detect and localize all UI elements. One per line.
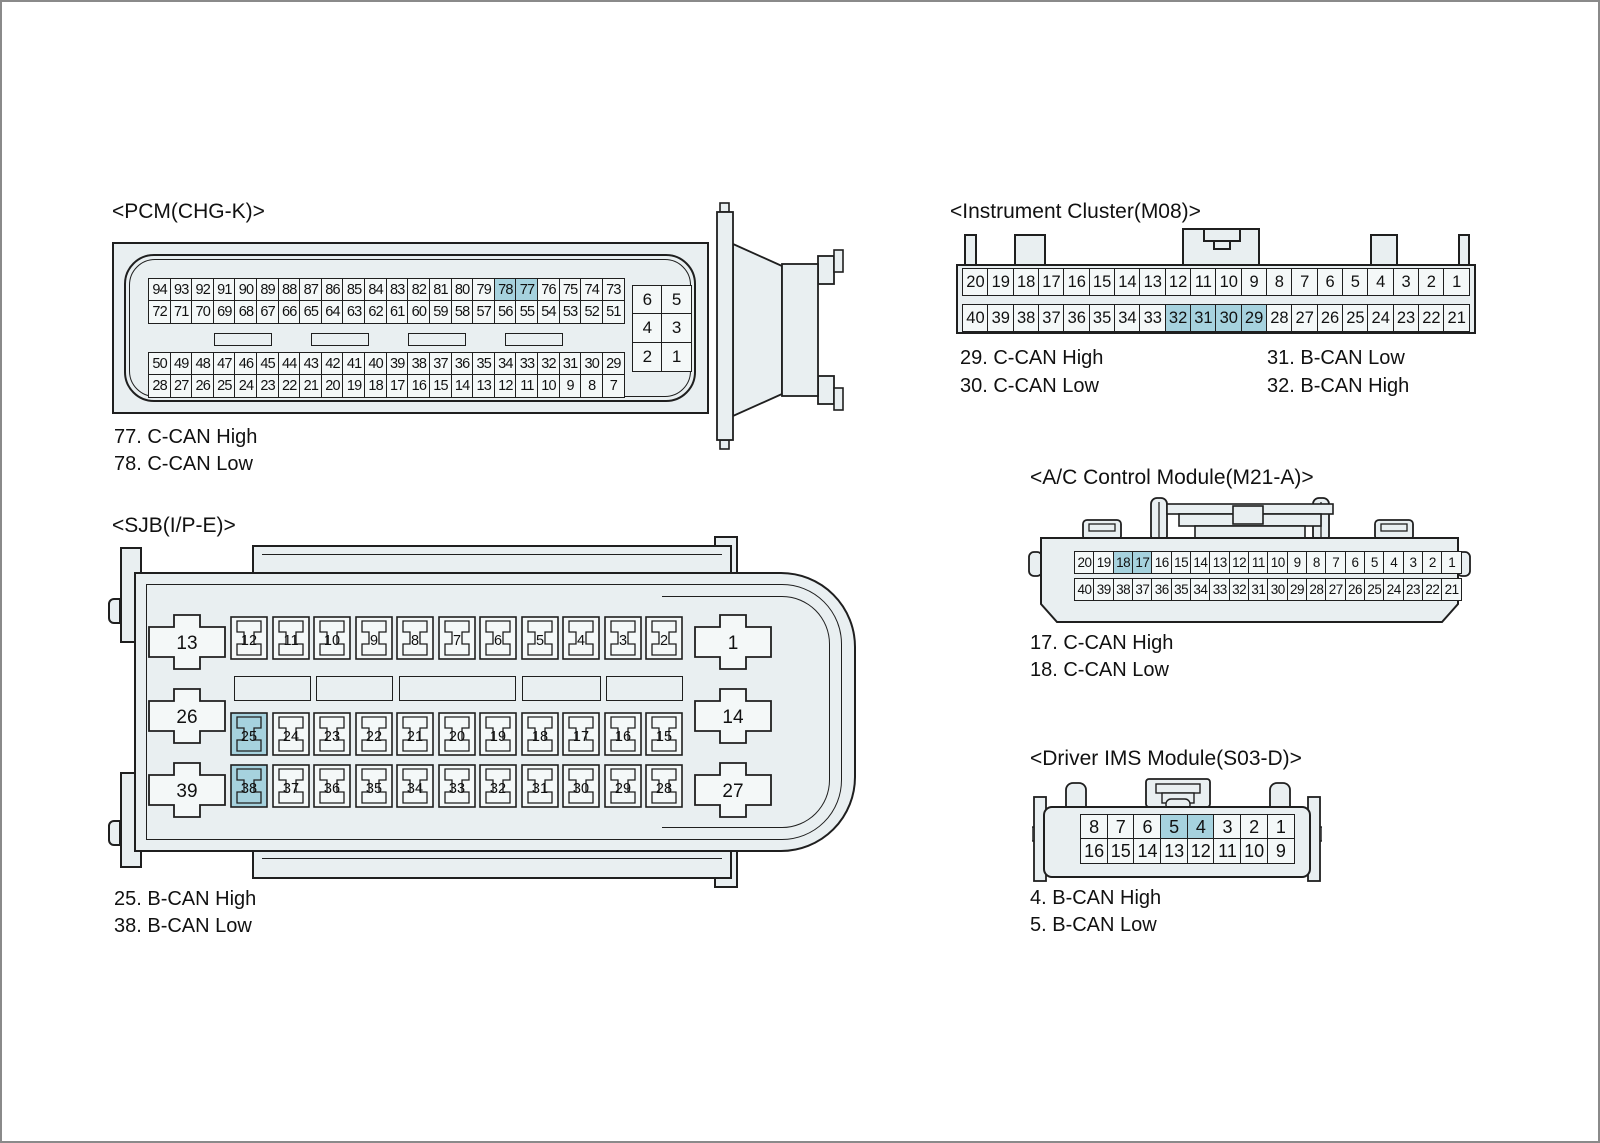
cluster-tab [1370, 234, 1398, 266]
terminal-17: 17 [562, 712, 600, 756]
cross-terminal-39: 39 [148, 762, 226, 818]
cross-terminal-27: 27 [694, 762, 772, 818]
ac-title: <A/C Control Module(M21-A)> [1030, 466, 1314, 490]
pin-1: 1 [661, 342, 692, 372]
pin-22: 22 [278, 374, 301, 398]
pin-28: 28 [1266, 304, 1293, 332]
ac-row-40-21: 4039383736353433323130292827262524232221 [1074, 578, 1462, 601]
pin-5: 5 [661, 285, 692, 315]
svg-text:24: 24 [282, 729, 298, 745]
terminal-23: 23 [313, 712, 351, 756]
keyway [214, 333, 272, 346]
svg-text:31: 31 [531, 781, 547, 797]
pin-64: 64 [321, 300, 344, 324]
pin-83: 83 [386, 278, 409, 302]
pin-33: 33 [1139, 304, 1166, 332]
sjb-title: <SJB(I/P-E)> [112, 514, 236, 538]
pcm-row-50-29: 5049484746454443424140393837363534333231… [148, 352, 625, 376]
pin-23: 23 [1403, 578, 1424, 601]
svg-text:7: 7 [452, 633, 460, 649]
terminal-25: 25 [230, 712, 268, 756]
pcm-row-28-7: 2827262524232221201918171615141312111098… [148, 374, 625, 398]
svg-text:38: 38 [241, 781, 257, 797]
pin-32: 32 [537, 352, 560, 376]
svg-text:25: 25 [241, 729, 257, 745]
pin-2: 2 [1240, 814, 1268, 840]
terminal-22: 22 [355, 712, 393, 756]
pin-1: 1 [1441, 551, 1462, 574]
pin-19: 19 [342, 374, 365, 398]
svg-text:5: 5 [535, 633, 543, 649]
terminal-33: 33 [438, 764, 476, 808]
pin-9: 9 [1267, 838, 1295, 864]
sjb-blank-slot [234, 676, 311, 701]
svg-text:23: 23 [324, 729, 340, 745]
pin-71: 71 [170, 300, 193, 324]
pin-39: 39 [1093, 578, 1114, 601]
terminal-6: 6 [479, 616, 517, 660]
sjb-row-38-28: 3837363534333231302928 [230, 764, 683, 808]
pin-15: 15 [1107, 838, 1135, 864]
svg-text:18: 18 [531, 729, 547, 745]
pin-37: 37 [1132, 578, 1153, 601]
pcm-side-row-6-5: 65 [632, 285, 692, 315]
pcm-note-1: 77. C-CAN High [114, 426, 257, 449]
ims-note-1: 4. B-CAN High [1030, 887, 1161, 910]
pin-11: 11 [515, 374, 538, 398]
terminal-2: 2 [645, 616, 683, 660]
pin-35: 35 [1089, 304, 1116, 332]
pin-57: 57 [472, 300, 495, 324]
pin-94: 94 [148, 278, 171, 302]
pin-15: 15 [1089, 268, 1116, 296]
pin-32: 32 [1165, 304, 1192, 332]
pin-72: 72 [148, 300, 171, 324]
pin-67: 67 [256, 300, 279, 324]
pin-30: 30 [1267, 578, 1288, 601]
pin-77: 77 [515, 278, 538, 302]
sjb-blank-slot [522, 676, 601, 701]
pin-33: 33 [515, 352, 538, 376]
svg-text:22: 22 [365, 729, 381, 745]
pin-18: 18 [1113, 551, 1134, 574]
ims-row-16-9: 161514131211109 [1080, 838, 1295, 864]
pin-3: 3 [661, 313, 692, 343]
pin-27: 27 [1325, 578, 1346, 601]
pin-16: 16 [407, 374, 430, 398]
pin-23: 23 [256, 374, 279, 398]
cross-terminal-1: 1 [694, 614, 772, 670]
pin-89: 89 [256, 278, 279, 302]
svg-text:16: 16 [614, 729, 630, 745]
pin-2: 2 [1422, 551, 1443, 574]
pin-13: 13 [1209, 551, 1230, 574]
pin-36: 36 [1063, 304, 1090, 332]
sjb-note-1: 25. B-CAN High [114, 888, 256, 911]
pin-10: 10 [537, 374, 560, 398]
pin-13: 13 [1160, 838, 1188, 864]
cross-terminal-26: 26 [148, 688, 226, 744]
sjb-blank-slot [316, 676, 393, 701]
pin-18: 18 [1013, 268, 1040, 296]
pin-31: 31 [1190, 304, 1217, 332]
pin-17: 17 [1038, 268, 1065, 296]
svg-text:2: 2 [660, 633, 668, 649]
svg-text:14: 14 [722, 707, 744, 728]
pin-28: 28 [1306, 578, 1327, 601]
pin-5: 5 [1364, 551, 1385, 574]
pin-56: 56 [494, 300, 517, 324]
pcm-pin-grid-lower: 5049484746454443424140393837363534333231… [148, 352, 625, 398]
pin-25: 25 [213, 374, 236, 398]
pcm-side-row-4-3: 43 [632, 313, 692, 343]
pin-3: 3 [1393, 268, 1420, 296]
pin-31: 31 [559, 352, 582, 376]
pin-38: 38 [407, 352, 430, 376]
terminal-19: 19 [479, 712, 517, 756]
pin-3: 3 [1213, 814, 1241, 840]
pin-14: 14 [1114, 268, 1141, 296]
pin-34: 34 [1190, 578, 1211, 601]
pin-60: 60 [407, 300, 430, 324]
svg-text:26: 26 [176, 707, 197, 728]
pin-20: 20 [321, 374, 344, 398]
cluster-note-1: 29. C-CAN High [960, 347, 1103, 370]
pin-22: 22 [1422, 578, 1443, 601]
cluster-note-3: 31. B-CAN Low [1267, 347, 1405, 370]
pin-24: 24 [1367, 304, 1394, 332]
ims-pin-grid: 87654321 161514131211109 [1080, 814, 1295, 864]
pin-6: 6 [1345, 551, 1366, 574]
cluster-row-40-21: 4039383736353433323130292827262524232221 [962, 304, 1470, 332]
pin-81: 81 [429, 278, 452, 302]
pin-12: 12 [1165, 268, 1192, 296]
svg-text:3: 3 [618, 633, 626, 649]
pin-65: 65 [299, 300, 322, 324]
pin-7: 7 [1325, 551, 1346, 574]
svg-text:33: 33 [448, 781, 464, 797]
keyway [311, 333, 369, 346]
pin-90: 90 [234, 278, 257, 302]
pin-33: 33 [1209, 578, 1230, 601]
pin-4: 4 [1367, 268, 1394, 296]
pin-2: 2 [1418, 268, 1445, 296]
pin-53: 53 [559, 300, 582, 324]
pin-26: 26 [191, 374, 214, 398]
pin-16: 16 [1063, 268, 1090, 296]
pin-9: 9 [1241, 268, 1268, 296]
cluster-tab [964, 234, 977, 266]
sjb-cross-terminals-right: 11427 [694, 614, 772, 818]
pin-74: 74 [580, 278, 603, 302]
terminal-10: 10 [313, 616, 351, 660]
pin-69: 69 [213, 300, 236, 324]
terminal-3: 3 [604, 616, 642, 660]
pin-5: 5 [1160, 814, 1188, 840]
pin-14: 14 [1133, 838, 1161, 864]
pin-7: 7 [602, 374, 625, 398]
terminal-16: 16 [604, 712, 642, 756]
terminal-34: 34 [396, 764, 434, 808]
pin-39: 39 [987, 304, 1014, 332]
pin-30: 30 [580, 352, 603, 376]
pin-47: 47 [213, 352, 236, 376]
cluster-latch-tab [1182, 228, 1260, 266]
pcm-side-row-2-1: 21 [632, 342, 692, 372]
pin-46: 46 [234, 352, 257, 376]
terminal-4: 4 [562, 616, 600, 660]
pin-27: 27 [170, 374, 193, 398]
ac-note-1: 17. C-CAN High [1030, 632, 1173, 655]
svg-text:39: 39 [176, 781, 197, 802]
pcm-title: <PCM(CHG-K)> [112, 200, 265, 224]
svg-text:17: 17 [573, 729, 589, 745]
terminal-20: 20 [438, 712, 476, 756]
pcm-row-94-73: 9493929190898887868584838281807978777675… [148, 278, 625, 302]
terminal-37: 37 [272, 764, 310, 808]
pcm-side-profile [715, 198, 845, 454]
svg-text:10: 10 [324, 633, 340, 649]
svg-text:30: 30 [573, 781, 589, 797]
terminal-7: 7 [438, 616, 476, 660]
pin-21: 21 [1443, 304, 1470, 332]
pin-23: 23 [1393, 304, 1420, 332]
pin-80: 80 [451, 278, 474, 302]
pin-14: 14 [451, 374, 474, 398]
pin-36: 36 [451, 352, 474, 376]
svg-text:35: 35 [365, 781, 381, 797]
terminal-12: 12 [230, 616, 268, 660]
pin-26: 26 [1345, 578, 1366, 601]
pin-37: 37 [429, 352, 452, 376]
pin-24: 24 [234, 374, 257, 398]
pin-36: 36 [1151, 578, 1172, 601]
pin-15: 15 [1171, 551, 1192, 574]
pin-38: 38 [1113, 578, 1134, 601]
terminal-18: 18 [521, 712, 559, 756]
pin-17: 17 [1132, 551, 1153, 574]
pin-87: 87 [299, 278, 322, 302]
pin-29: 29 [1241, 304, 1268, 332]
pin-86: 86 [321, 278, 344, 302]
pin-79: 79 [472, 278, 495, 302]
svg-text:37: 37 [282, 781, 298, 797]
cross-terminal-14: 14 [694, 688, 772, 744]
pin-10: 10 [1267, 551, 1288, 574]
pin-9: 9 [1287, 551, 1308, 574]
pin-18: 18 [364, 374, 387, 398]
pin-93: 93 [170, 278, 193, 302]
pcm-side-pin-grid: 65 43 21 [632, 285, 692, 372]
pin-27: 27 [1291, 304, 1318, 332]
pcm-pin-grid-upper: 9493929190898887868584838281807978777675… [148, 278, 625, 324]
pin-20: 20 [962, 268, 989, 296]
pin-12: 12 [1229, 551, 1250, 574]
ac-note-2: 18. C-CAN Low [1030, 659, 1169, 682]
pin-34: 34 [494, 352, 517, 376]
pin-26: 26 [1317, 304, 1344, 332]
svg-text:19: 19 [490, 729, 506, 745]
pin-75: 75 [559, 278, 582, 302]
wiring-diagram-canvas: <PCM(CHG-K)> 949392919089888786858483828… [0, 0, 1600, 1143]
terminal-11: 11 [272, 616, 310, 660]
pin-70: 70 [191, 300, 214, 324]
cluster-title: <Instrument Cluster(M08)> [950, 200, 1201, 224]
pin-1: 1 [1443, 268, 1470, 296]
svg-text:36: 36 [324, 781, 340, 797]
sjb-cross-terminals-left: 132639 [148, 614, 226, 818]
terminal-36: 36 [313, 764, 351, 808]
pin-39: 39 [386, 352, 409, 376]
terminal-9: 9 [355, 616, 393, 660]
pin-42: 42 [321, 352, 344, 376]
pin-2: 2 [632, 342, 663, 372]
cross-terminal-13: 13 [148, 614, 226, 670]
svg-text:34: 34 [407, 781, 423, 797]
svg-text:6: 6 [494, 633, 502, 649]
pin-61: 61 [386, 300, 409, 324]
pin-59: 59 [429, 300, 452, 324]
svg-text:4: 4 [577, 633, 585, 649]
svg-text:9: 9 [369, 633, 377, 649]
pin-17: 17 [386, 374, 409, 398]
svg-text:21: 21 [407, 729, 423, 745]
pin-31: 31 [1248, 578, 1269, 601]
pin-11: 11 [1213, 838, 1241, 864]
svg-text:27: 27 [722, 781, 743, 802]
pin-20: 20 [1074, 551, 1095, 574]
pin-13: 13 [1139, 268, 1166, 296]
svg-text:15: 15 [656, 729, 672, 745]
pin-63: 63 [342, 300, 365, 324]
pin-1: 1 [1267, 814, 1295, 840]
terminal-31: 31 [521, 764, 559, 808]
svg-text:29: 29 [614, 781, 630, 797]
pin-29: 29 [1287, 578, 1308, 601]
pin-55: 55 [515, 300, 538, 324]
pin-38: 38 [1013, 304, 1040, 332]
pin-78: 78 [494, 278, 517, 302]
pin-66: 66 [278, 300, 301, 324]
pin-4: 4 [1187, 814, 1215, 840]
sjb-top-rail-line [262, 554, 722, 555]
terminal-24: 24 [272, 712, 310, 756]
terminal-32: 32 [479, 764, 517, 808]
sjb-blank-slot [606, 676, 683, 701]
pin-51: 51 [602, 300, 625, 324]
svg-text:12: 12 [241, 633, 257, 649]
terminal-38: 38 [230, 764, 268, 808]
pin-14: 14 [1190, 551, 1211, 574]
pin-6: 6 [632, 285, 663, 315]
pin-4: 4 [1383, 551, 1404, 574]
pin-45: 45 [256, 352, 279, 376]
svg-text:8: 8 [411, 633, 419, 649]
pin-35: 35 [1171, 578, 1192, 601]
pin-9: 9 [559, 374, 582, 398]
ac-row-20-1: 2019181716151413121110987654321 [1074, 551, 1462, 574]
pin-5: 5 [1342, 268, 1369, 296]
pin-52: 52 [580, 300, 603, 324]
cluster-tab [1014, 234, 1046, 266]
ims-note-2: 5. B-CAN Low [1030, 914, 1157, 937]
pin-21: 21 [1441, 578, 1462, 601]
pin-12: 12 [494, 374, 517, 398]
cluster-note-2: 30. C-CAN Low [960, 375, 1099, 398]
pin-82: 82 [407, 278, 430, 302]
pin-12: 12 [1187, 838, 1215, 864]
sjb-note-2: 38. B-CAN Low [114, 915, 252, 938]
pcm-row-72-51: 7271706968676665646362616059585756555453… [148, 300, 625, 324]
pin-8: 8 [1080, 814, 1108, 840]
pin-7: 7 [1107, 814, 1135, 840]
terminal-15: 15 [645, 712, 683, 756]
pin-43: 43 [299, 352, 322, 376]
terminal-8: 8 [396, 616, 434, 660]
pin-29: 29 [602, 352, 625, 376]
pin-34: 34 [1114, 304, 1141, 332]
terminal-28: 28 [645, 764, 683, 808]
pin-40: 40 [1074, 578, 1095, 601]
terminal-35: 35 [355, 764, 393, 808]
sjb-top-rail [252, 545, 732, 575]
sjb-blank-slot [399, 676, 516, 701]
pin-10: 10 [1215, 268, 1242, 296]
pin-19: 19 [1093, 551, 1114, 574]
pin-25: 25 [1364, 578, 1385, 601]
pin-8: 8 [1266, 268, 1293, 296]
pin-3: 3 [1403, 551, 1424, 574]
pin-88: 88 [278, 278, 301, 302]
pin-32: 32 [1229, 578, 1250, 601]
pin-73: 73 [602, 278, 625, 302]
cluster-tab [1458, 234, 1470, 266]
pin-58: 58 [451, 300, 474, 324]
pin-91: 91 [213, 278, 236, 302]
terminal-30: 30 [562, 764, 600, 808]
sjb-row-25-15: 2524232221201918171615 [230, 712, 683, 756]
pin-30: 30 [1215, 304, 1242, 332]
pin-13: 13 [472, 374, 495, 398]
pin-40: 40 [364, 352, 387, 376]
pin-8: 8 [1306, 551, 1327, 574]
pin-48: 48 [191, 352, 214, 376]
pin-22: 22 [1418, 304, 1445, 332]
pin-28: 28 [148, 374, 171, 398]
pin-35: 35 [472, 352, 495, 376]
cluster-latch-notch [1203, 228, 1241, 242]
pin-24: 24 [1383, 578, 1404, 601]
cluster-latch-notch-inner [1213, 242, 1231, 250]
pin-76: 76 [537, 278, 560, 302]
pin-19: 19 [987, 268, 1014, 296]
pin-16: 16 [1151, 551, 1172, 574]
svg-text:28: 28 [656, 781, 672, 797]
pin-92: 92 [191, 278, 214, 302]
sjb-row-12-2: 12111098765432 [230, 616, 683, 660]
pin-16: 16 [1080, 838, 1108, 864]
pin-15: 15 [429, 374, 452, 398]
terminal-21: 21 [396, 712, 434, 756]
svg-text:13: 13 [176, 633, 197, 654]
pcm-note-2: 78. C-CAN Low [114, 453, 253, 476]
keyway [408, 333, 466, 346]
ims-title: <Driver IMS Module(S03-D)> [1030, 747, 1302, 771]
pin-11: 11 [1190, 268, 1217, 296]
sjb-bottom-rail [252, 849, 732, 879]
pin-68: 68 [234, 300, 257, 324]
svg-text:20: 20 [448, 729, 464, 745]
